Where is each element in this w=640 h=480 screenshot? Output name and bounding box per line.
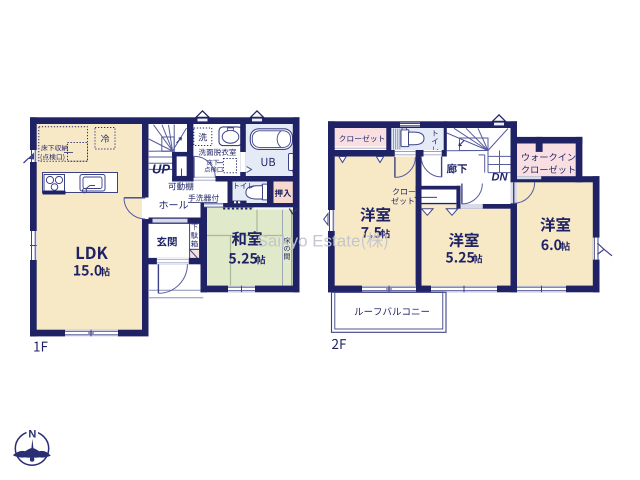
svg-text:N: N bbox=[28, 428, 36, 440]
svg-text:DN: DN bbox=[492, 172, 509, 184]
svg-text:Saikyo Estate: Saikyo Estate bbox=[257, 232, 361, 251]
svg-text:UP: UP bbox=[152, 162, 170, 177]
